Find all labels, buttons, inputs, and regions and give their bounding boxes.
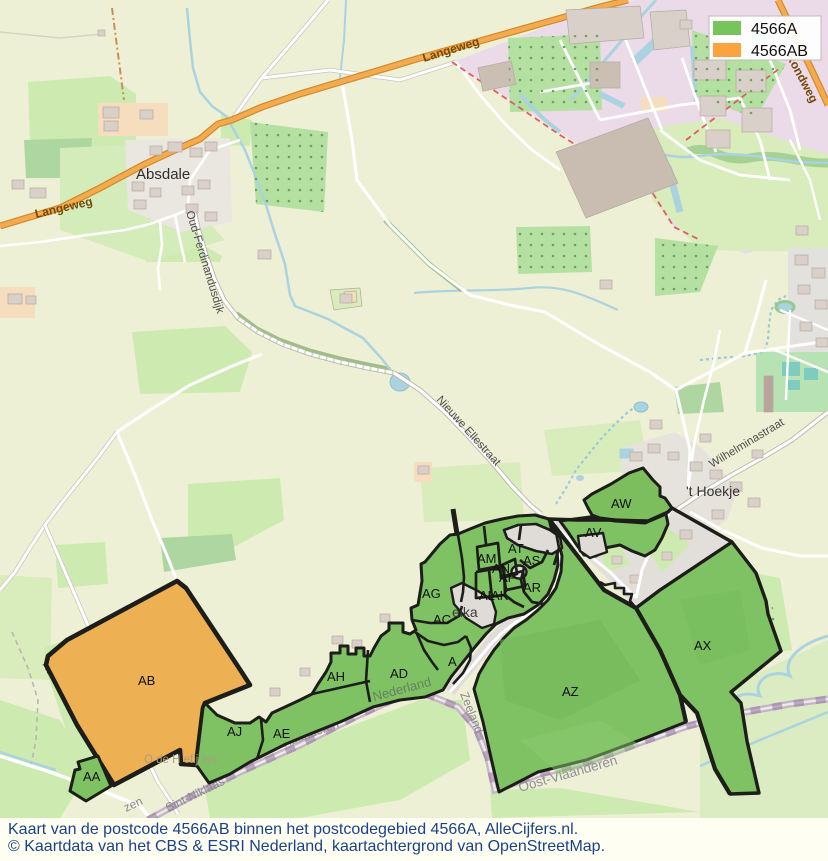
svg-text:4566A: 4566A: [751, 21, 798, 38]
svg-text:AV: AV: [585, 525, 602, 540]
svg-text:eika: eika: [452, 604, 478, 620]
svg-text:A: A: [448, 654, 457, 669]
svg-text:AP: AP: [499, 570, 516, 585]
svg-text:AC: AC: [433, 612, 451, 627]
svg-text:'t Hoekje: 't Hoekje: [686, 483, 740, 499]
svg-text:AB: AB: [138, 673, 155, 688]
svg-text:AZ: AZ: [562, 684, 579, 699]
svg-text:AX: AX: [694, 638, 712, 653]
svg-text:AD: AD: [390, 666, 408, 681]
svg-text:AG: AG: [422, 586, 441, 601]
svg-text:O de H efij ers: O de H efij ers: [144, 754, 218, 766]
svg-text:AK: AK: [491, 588, 509, 603]
svg-text:AR: AR: [523, 580, 541, 595]
svg-text:AH: AH: [327, 669, 345, 684]
svg-text:AJ: AJ: [227, 724, 242, 739]
svg-text:AE: AE: [273, 726, 291, 741]
svg-text:AT: AT: [508, 541, 524, 556]
svg-text:AS: AS: [523, 553, 541, 568]
svg-text:Absdale: Absdale: [136, 166, 190, 183]
svg-text:© Kaartdata van het CBS & ESRI: © Kaartdata van het CBS & ESRI Nederland…: [8, 838, 605, 855]
svg-text:AA: AA: [83, 769, 101, 784]
svg-text:AW: AW: [611, 496, 632, 511]
svg-text:Kaart van de postcode 4566AB b: Kaart van de postcode 4566AB binnen het …: [8, 821, 578, 838]
svg-text:4566AB: 4566AB: [751, 43, 808, 60]
